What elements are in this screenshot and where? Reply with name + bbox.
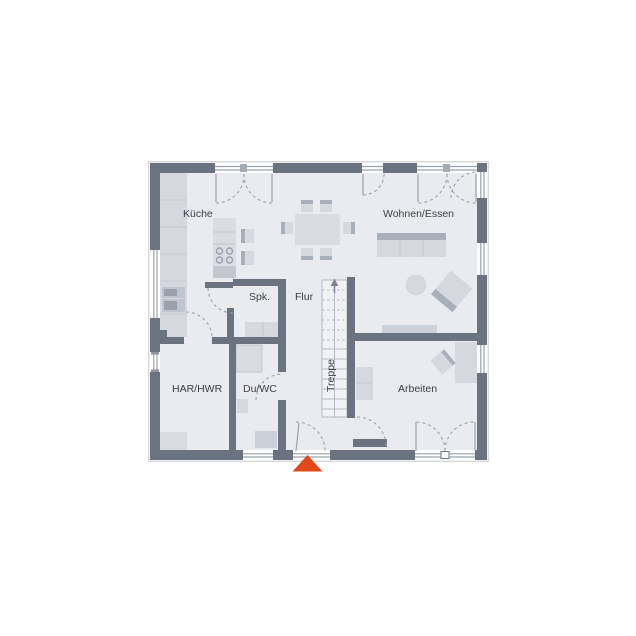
sink [255,431,277,448]
terrace-door-office [415,450,475,460]
wc [237,399,248,413]
window-duwc-bottom [243,450,273,460]
door-top-single [362,163,383,173]
room-label-flur: Flur [295,291,314,303]
floorplan-svg: Küche Wohnen/Essen Spk. Flur Treppe HAR/… [0,0,636,636]
boiler [160,432,187,450]
desk [455,342,477,383]
room-label-spk: Spk. [249,291,270,303]
coffee-table [406,275,427,296]
sideboard [382,325,437,333]
terrace-door-living [417,163,477,173]
side-door-right-top [477,172,487,198]
entrance-door-opening [293,450,330,460]
room-label-du-wc: Du/WC [243,383,277,395]
room-label-kueche: Küche [183,208,213,220]
floorplan-canvas: Küche Wohnen/Essen Spk. Flur Treppe HAR/… [0,0,636,636]
sofa [377,233,446,241]
staircase [322,279,347,418]
window-office-right [477,345,487,373]
room-label-treppe: Treppe [325,359,337,392]
window-har-left [150,352,160,372]
room-label-har-hwr: HAR/HWR [172,383,223,395]
kitchen-appliance-icon [164,289,177,296]
room-label-arbeiten: Arbeiten [398,383,437,395]
kitchen-appliance-icon [164,301,177,310]
window-living-right [477,243,487,275]
dining-table [295,214,340,245]
terrace-door-kitchen [215,163,273,173]
shower [236,345,262,372]
room-label-wohnen-essen: Wohnen/Essen [383,208,454,220]
window-kitchen-left [150,250,160,318]
